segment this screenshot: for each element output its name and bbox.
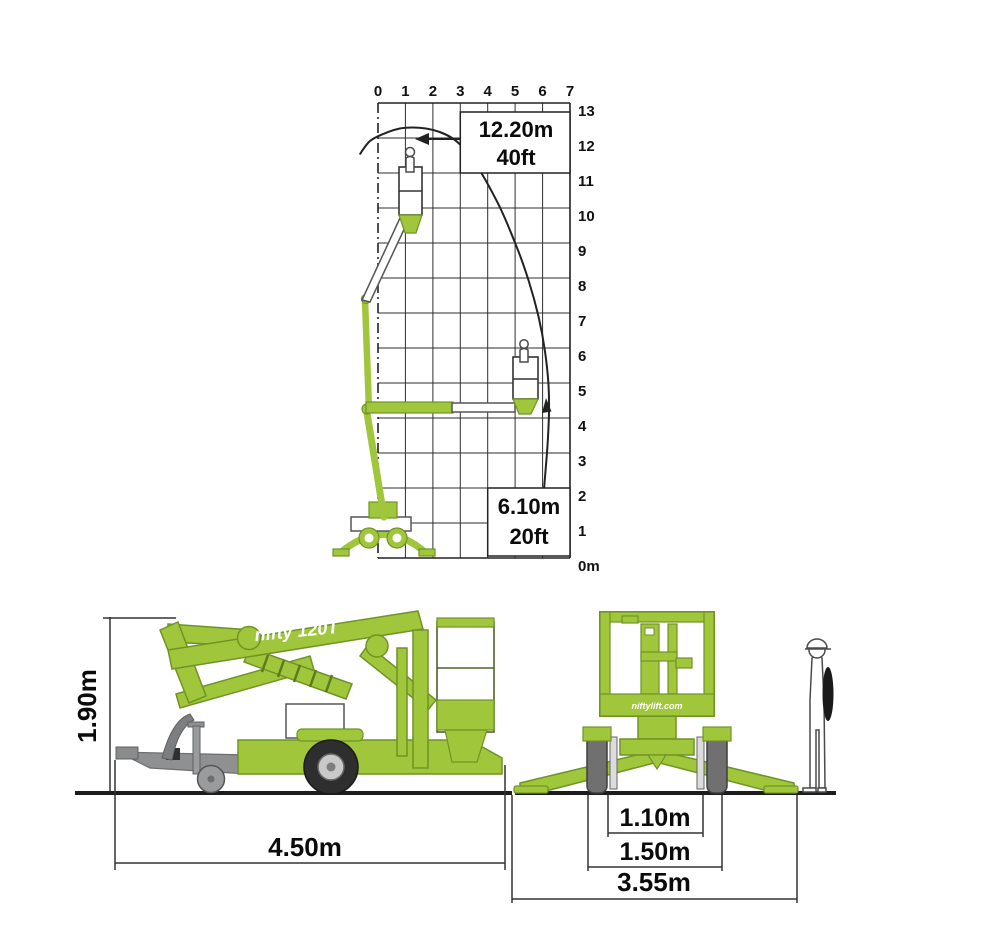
x-axis-ticks: 0 1 2 3 4 5 6 7 — [374, 83, 574, 100]
y-tick-label: 9 — [578, 243, 586, 260]
jack-cylinder-right — [697, 737, 704, 789]
upper-riser-arm — [365, 300, 369, 410]
person-foot — [818, 788, 826, 792]
height-pointer-arrow-icon — [415, 133, 429, 145]
working-envelope-curve — [360, 128, 549, 490]
y-tick-label: 10 — [578, 208, 595, 225]
y-tick-label: 0m — [578, 558, 600, 575]
brand-url-text: niftylift.com — [632, 701, 683, 711]
basket-bracket — [622, 616, 638, 623]
y-tick-label: 12 — [578, 138, 595, 155]
max-outreach-imperial: 20ft — [509, 524, 549, 549]
jockey-wheel-hub — [208, 776, 215, 783]
mast-detail — [645, 628, 654, 635]
fender-right — [703, 727, 731, 741]
height-dimension-label: 1.90m — [72, 669, 102, 743]
wheel-hub — [327, 763, 336, 772]
envelope-chart: 0 1 2 3 4 5 6 7 13 12 11 10 9 8 7 6 5 4 … — [333, 83, 600, 575]
lower-riser-arm — [367, 413, 384, 517]
x-tick-label: 7 — [566, 83, 574, 100]
track-dimension: 1.10m — [608, 795, 703, 837]
envelope-direction-arrow-icon — [542, 398, 552, 413]
telescopic-boom-extension — [452, 403, 515, 412]
riser-link-inner — [397, 648, 407, 756]
jockey-post — [193, 726, 200, 774]
telescopic-boom-horizontal — [366, 402, 453, 413]
backpack — [823, 667, 834, 721]
coupling-head — [116, 747, 138, 759]
max-height-imperial: 40ft — [496, 145, 536, 170]
diagram-svg: 0 1 2 3 4 5 6 7 13 12 11 10 9 8 7 6 5 4 … — [0, 0, 1002, 936]
y-tick-label: 4 — [578, 418, 587, 435]
rear-wheel-left — [587, 733, 607, 793]
rear-wheel-right — [707, 733, 727, 793]
hard-hat-icon — [807, 639, 827, 648]
rear-view: niftylift.com 1.10m 1.50m — [512, 612, 836, 903]
basket-top-rail — [600, 612, 714, 622]
max-height-label-box: 12.20m 40ft — [415, 112, 570, 173]
y-tick-label: 8 — [578, 278, 586, 295]
tow-hitch-assembly — [116, 714, 248, 793]
wheel-hub — [365, 534, 374, 543]
y-tick-label: 13 — [578, 103, 595, 120]
outrigger-arc — [340, 535, 426, 554]
outrigger-foot-left — [514, 786, 548, 793]
y-tick-label: 3 — [578, 453, 586, 470]
x-tick-label: 3 — [456, 83, 464, 100]
operator-figure — [520, 340, 528, 362]
wheel-hub — [393, 534, 402, 543]
boom-pivot-rear — [366, 635, 388, 657]
y-tick-label: 11 — [578, 173, 594, 190]
x-tick-label: 5 — [511, 83, 519, 100]
outrigger-foot-left — [333, 549, 349, 556]
mast-crossbar — [641, 652, 677, 661]
x-tick-label: 6 — [538, 83, 546, 100]
y-tick-label: 6 — [578, 348, 586, 365]
y-tick-label: 1 — [578, 523, 586, 540]
person-foot — [803, 788, 816, 792]
road-wheel — [297, 729, 363, 794]
width-dimension-label: 1.50m — [620, 838, 691, 866]
basket-top-rail — [437, 618, 494, 627]
chassis-rear — [620, 739, 694, 755]
basket-step — [676, 658, 692, 668]
max-height-metric: 12.20m — [479, 117, 554, 142]
person-body — [810, 656, 825, 789]
max-outreach-metric: 6.10m — [498, 494, 560, 519]
side-view: 1.90m — [72, 611, 512, 870]
y-tick-label: 2 — [578, 488, 586, 505]
jack-cylinder-left — [610, 737, 617, 789]
turntable-column — [638, 715, 676, 739]
operator-figure — [406, 148, 415, 173]
diagram-canvas: 0 1 2 3 4 5 6 7 13 12 11 10 9 8 7 6 5 4 … — [0, 0, 1002, 936]
riser-link-outer — [413, 630, 428, 768]
fender-left — [583, 727, 611, 741]
x-tick-label: 0 — [374, 83, 382, 100]
y-tick-label: 7 — [578, 313, 586, 330]
x-tick-label: 2 — [429, 83, 437, 100]
person-for-scale — [803, 639, 834, 792]
x-tick-label: 1 — [401, 83, 409, 100]
x-tick-label: 4 — [484, 83, 493, 100]
track-dimension-label: 1.10m — [620, 804, 691, 832]
outrigger-dimension-label: 3.55m — [617, 867, 691, 897]
y-axis-ticks: 13 12 11 10 9 8 7 6 5 4 3 2 1 0m — [578, 103, 600, 575]
y-tick-label: 5 — [578, 383, 586, 400]
max-outreach-label-box: 6.10m 20ft — [488, 488, 570, 556]
basket-lower-band — [437, 700, 494, 730]
basket-rear: niftylift.com — [600, 612, 714, 716]
wheel-fender — [297, 729, 363, 741]
telescopic-boom-raised — [362, 218, 408, 302]
outrigger-foot-right — [764, 786, 798, 793]
platform-base-outreach — [513, 399, 538, 414]
length-dimension-label: 4.50m — [268, 832, 342, 862]
outrigger-foot-right — [419, 549, 435, 556]
platform-outreach — [513, 357, 538, 399]
